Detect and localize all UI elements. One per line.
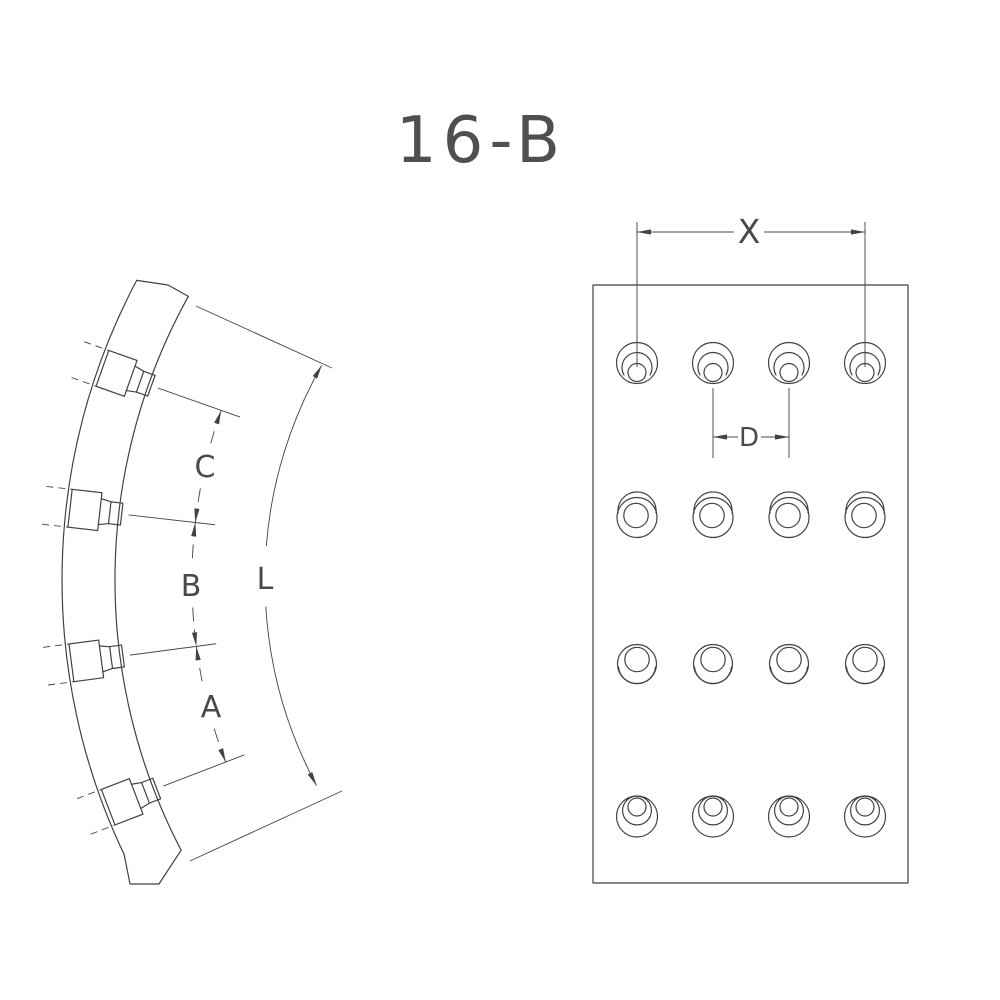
side-view-bottom-edge [124,850,181,884]
dim-l: L [190,306,342,861]
rivet-hole-side-2 [42,486,217,543]
rivet-hole-face [845,796,886,837]
dim-l-ext-top [196,306,332,368]
side-view-top-edge [137,280,189,296]
dim-a: A [196,646,225,762]
dim-c: C [195,410,222,522]
dim-d: D [713,388,789,458]
rivet-hole-face [845,492,885,538]
side-view-inner-arc [115,296,188,850]
dim-label-l: L [257,562,274,597]
rivet-hole-face [770,645,809,684]
rivet-hole-face [693,492,733,538]
side-view-outer-arc [62,280,137,854]
side-view: C B A L [42,280,342,884]
rivet-hole-face [617,492,657,538]
rivet-hole-face [769,492,809,538]
dim-b: B [181,523,202,647]
rivet-hole-face [769,796,810,837]
face-view: X D [593,212,908,883]
rivet-hole-face [693,343,734,384]
dim-x: X [637,212,865,367]
drawing-sheet: 16-B C B A [0,0,1000,1000]
rivet-hole-face [769,343,810,384]
rivet-hole-side-1 [72,342,247,435]
rivet-hole-face [618,645,657,684]
rivet-hole-face [617,796,658,837]
dim-label-b: B [181,569,202,604]
dim-label-x: X [738,212,761,251]
technical-drawing-canvas: 16-B C B A [0,0,1000,1000]
dim-l-ext-bottom [190,791,342,861]
face-view-plate-outline [593,285,908,883]
rivet-hole-side-4 [77,737,251,834]
dim-label-d: D [739,423,759,453]
dim-label-c: C [195,450,216,485]
rivet-hole-face [694,645,733,684]
rivet-hole-face [846,645,885,684]
drawing-title: 16-B [396,104,566,178]
dim-label-a: A [201,690,222,725]
rivet-hole-face [693,796,734,837]
